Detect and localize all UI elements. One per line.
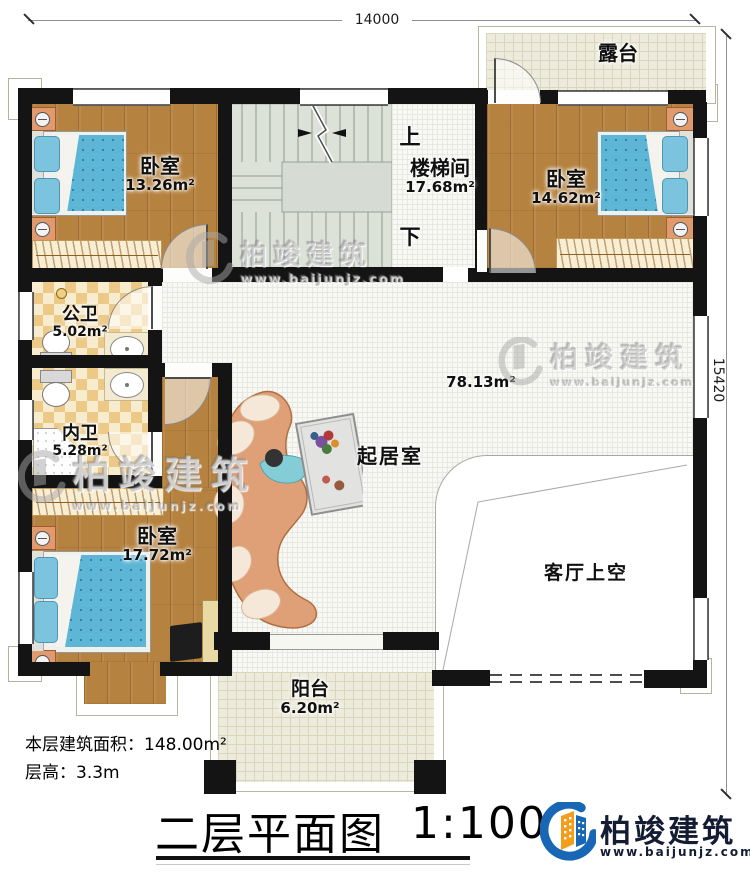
room-label-balcony: 阳台 6.20m² (260, 679, 360, 717)
stairs (228, 104, 392, 268)
window (18, 572, 34, 644)
room-area: 17.68m² (395, 179, 485, 196)
room-area: 17.72m² (107, 547, 207, 564)
wall (228, 267, 443, 282)
lamp-icon (673, 222, 688, 237)
floor-area-info: 本层建筑面积：148.00m² (25, 730, 227, 755)
title-text: 二层平面图 (155, 798, 385, 862)
railing-window (490, 681, 646, 683)
dimension-line-right (726, 36, 727, 796)
lamp-icon (35, 531, 50, 546)
room-label-bedroom-topright: 卧室 14.62m² (521, 168, 611, 207)
room-name: 卧室 (546, 167, 586, 191)
room-label-private-bathroom: 内卫 5.28m² (40, 424, 120, 460)
window (693, 316, 709, 418)
wall (218, 363, 232, 676)
dimension-tick (689, 13, 700, 24)
nightstand (28, 107, 56, 131)
dimension-height: 15420 (710, 350, 726, 410)
wardrobe-rod (36, 255, 159, 256)
wall (214, 632, 270, 650)
room-name: 内卫 (62, 423, 98, 444)
pillow (34, 178, 60, 214)
room-label-living-room: 起居室 (340, 445, 440, 467)
lamp-icon (35, 112, 50, 127)
railing-window (490, 674, 646, 676)
room-name: 客厅上空 (544, 562, 628, 584)
brand-logo-icon (540, 802, 596, 862)
wall (432, 670, 490, 686)
lamp-icon (673, 112, 688, 127)
ceiling-lamp-icon (56, 288, 67, 299)
door-gap (477, 230, 487, 272)
door-gap (165, 363, 212, 377)
floor-plan: 露台 卧室 13.26m² 上 楼梯间 17.68m² 下 卧室 14.62m²… (0, 0, 750, 876)
title-underline-shadow (156, 864, 470, 865)
tv (170, 622, 202, 662)
title-underline (156, 856, 470, 860)
pillow (34, 136, 60, 172)
room-name: 楼梯间 (410, 156, 470, 180)
room-name: 公卫 (62, 304, 98, 325)
wall (18, 355, 162, 368)
pillar (414, 760, 446, 794)
wardrobe (32, 240, 162, 270)
window (300, 88, 388, 106)
balcony-opening (270, 634, 383, 650)
nightstand (28, 217, 56, 241)
pillar (204, 760, 236, 794)
dimension-width: 14000 (342, 12, 412, 30)
brand-url: www.baijunjz.com (600, 845, 750, 859)
room-area: 13.26m² (105, 177, 215, 194)
wardrobe (32, 488, 164, 516)
room-area: 14.62m² (521, 190, 611, 207)
door-gap (163, 268, 212, 282)
wardrobe-rod (36, 502, 161, 503)
pillow (662, 136, 688, 172)
stairs-down-label: 下 (396, 226, 424, 250)
up-label: 上 (400, 125, 421, 149)
wall (218, 104, 232, 282)
window (693, 138, 709, 216)
room-label-bedroom-topleft: 卧室 13.26m² (105, 155, 215, 194)
down-label: 下 (400, 225, 421, 249)
room-label-public-bathroom: 公卫 5.02m² (40, 305, 120, 341)
bay-floor (84, 662, 166, 704)
nightstand (666, 107, 694, 131)
lamp-icon (35, 222, 50, 237)
room-label-terrace: 露台 (583, 42, 653, 64)
stairs-up-label: 上 (396, 126, 424, 150)
wardrobe-rod (560, 254, 691, 255)
wall (644, 670, 706, 688)
toilet-icon (42, 382, 70, 407)
title-scale: 1:100 (411, 798, 548, 862)
room-area: 6.20m² (260, 700, 360, 717)
pillow (662, 178, 688, 214)
room-area: 78.13m² (446, 373, 516, 391)
room-name: 阳台 (291, 678, 329, 700)
window (18, 292, 34, 340)
wall (383, 632, 439, 650)
wall (18, 475, 162, 488)
drain-icon (125, 383, 129, 387)
window (558, 90, 668, 106)
wall (18, 662, 90, 676)
living-room-area: 78.13m² (431, 374, 531, 391)
room-name: 露台 (598, 41, 638, 65)
dimension-tick (23, 13, 34, 24)
room-name: 起居室 (357, 444, 423, 468)
room-name: 卧室 (137, 524, 177, 548)
drawing-title: 二层平面图 1:100 (155, 798, 548, 862)
wall (160, 662, 232, 676)
sink-icon (110, 372, 144, 398)
nightstand (28, 526, 56, 550)
room-label-bedroom-bottomleft: 卧室 17.72m² (107, 525, 207, 564)
pillow (34, 557, 58, 599)
window (18, 400, 34, 440)
room-label-stairwell: 楼梯间 17.68m² (395, 157, 485, 196)
floor-height-info: 层高：3.3m (25, 758, 120, 783)
window (73, 88, 170, 106)
room-area: 5.02m² (40, 325, 120, 341)
pillow (34, 601, 58, 643)
room-label-living-void: 客厅上空 (516, 563, 656, 584)
drain-icon (125, 347, 129, 351)
room-name: 卧室 (140, 154, 180, 178)
room-area: 5.28m² (40, 444, 120, 460)
wardrobe (556, 238, 694, 270)
window (693, 598, 709, 660)
person-head (265, 449, 283, 467)
